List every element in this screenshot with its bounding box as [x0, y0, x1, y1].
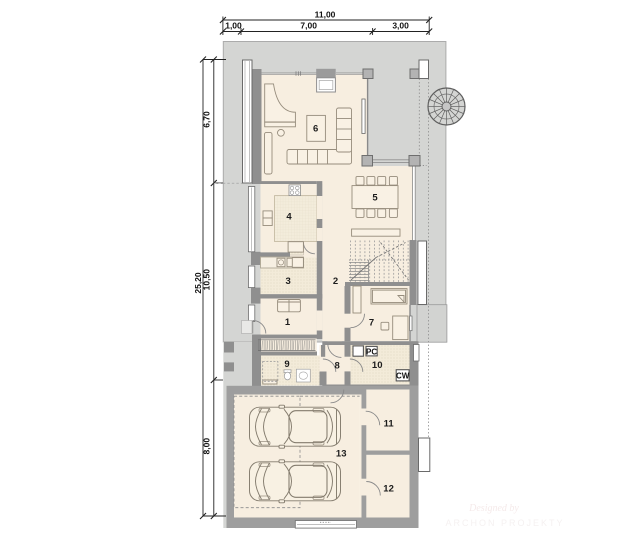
- svg-text:1,00: 1,00: [225, 21, 242, 31]
- svg-text:5: 5: [372, 193, 378, 204]
- svg-text:8,00: 8,00: [202, 438, 212, 455]
- svg-text:CW: CW: [396, 372, 410, 381]
- svg-text:3: 3: [285, 276, 290, 287]
- svg-text:Designed by: Designed by: [468, 503, 519, 514]
- svg-text:12: 12: [383, 484, 394, 495]
- svg-text:10: 10: [372, 360, 383, 371]
- svg-text:PC: PC: [366, 348, 377, 357]
- svg-text:ARCHON PROJEKTY: ARCHON PROJEKTY: [445, 518, 564, 528]
- svg-text:1: 1: [285, 317, 291, 328]
- svg-text:6,70: 6,70: [202, 111, 212, 128]
- svg-text:3,00: 3,00: [392, 21, 409, 31]
- svg-text:11: 11: [384, 419, 395, 430]
- svg-text:4: 4: [286, 211, 292, 222]
- svg-text:10,50: 10,50: [202, 269, 212, 291]
- svg-text:2: 2: [333, 276, 338, 287]
- svg-text:6: 6: [313, 123, 318, 134]
- svg-text:11,00: 11,00: [315, 10, 336, 20]
- svg-text:7,00: 7,00: [300, 21, 317, 31]
- svg-text:7: 7: [369, 317, 374, 328]
- svg-text:13: 13: [336, 449, 347, 460]
- svg-text:8: 8: [335, 360, 340, 371]
- svg-text:9: 9: [284, 359, 289, 370]
